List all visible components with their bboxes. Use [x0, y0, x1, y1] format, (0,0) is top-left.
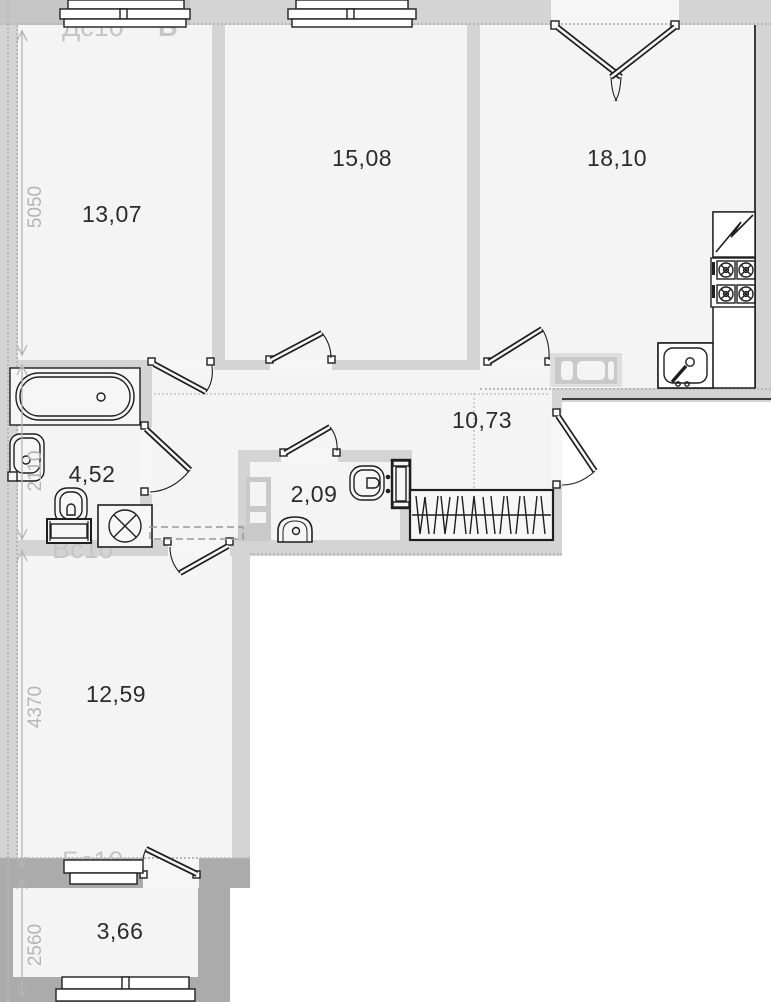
kitchen-area: 18,10: [572, 145, 662, 172]
window-icon: [56, 977, 195, 1001]
door-wc-icon: [280, 427, 340, 456]
hallway-area: 10,73: [437, 407, 527, 434]
radiator-icon: [550, 353, 622, 387]
door-room2-icon: [266, 333, 335, 363]
wc-area: 2,09: [269, 481, 359, 508]
toilet-icon: [47, 488, 91, 543]
dim-2110: 2110: [25, 436, 47, 506]
dim-5050: 5050: [25, 172, 47, 242]
door-room3-icon: [164, 538, 233, 573]
dim-2560: 2560: [25, 910, 47, 980]
window-icon: [60, 0, 190, 27]
kitchen-sink-icon: [658, 343, 713, 388]
washing-machine-icon: [98, 505, 152, 547]
stove-icon: [711, 258, 755, 307]
vent-shaft: [238, 477, 271, 541]
wardrobe-icon: [410, 490, 553, 540]
window-icon: [288, 0, 416, 27]
wc-toilet-icon: [350, 460, 410, 508]
room2-area: 15,08: [317, 145, 407, 172]
entrance-door-icon: [553, 409, 595, 488]
overhead-cabinet-dashed: [150, 527, 243, 539]
floor-plan: Кс Дс10 Б Гс10 Вс10 Бс10: [0, 0, 771, 1002]
balcony-area: 3,66: [75, 918, 165, 945]
balcony-door-icon: [140, 849, 200, 878]
bathroom-area: 4,52: [47, 461, 137, 488]
fridge-icon: [713, 212, 755, 257]
french-door-icon: [551, 21, 679, 101]
dim-4370: 4370: [25, 672, 47, 742]
room3-area: 12,59: [71, 681, 161, 708]
bathtub-icon: [10, 368, 140, 425]
window-icon: [64, 860, 143, 884]
door-room1-icon: [148, 358, 214, 392]
wc-washbasin-icon: [278, 517, 312, 542]
door-kitchen-icon: [484, 329, 552, 365]
room1-area: 13,07: [67, 201, 157, 228]
door-bathroom-icon: [141, 422, 190, 495]
